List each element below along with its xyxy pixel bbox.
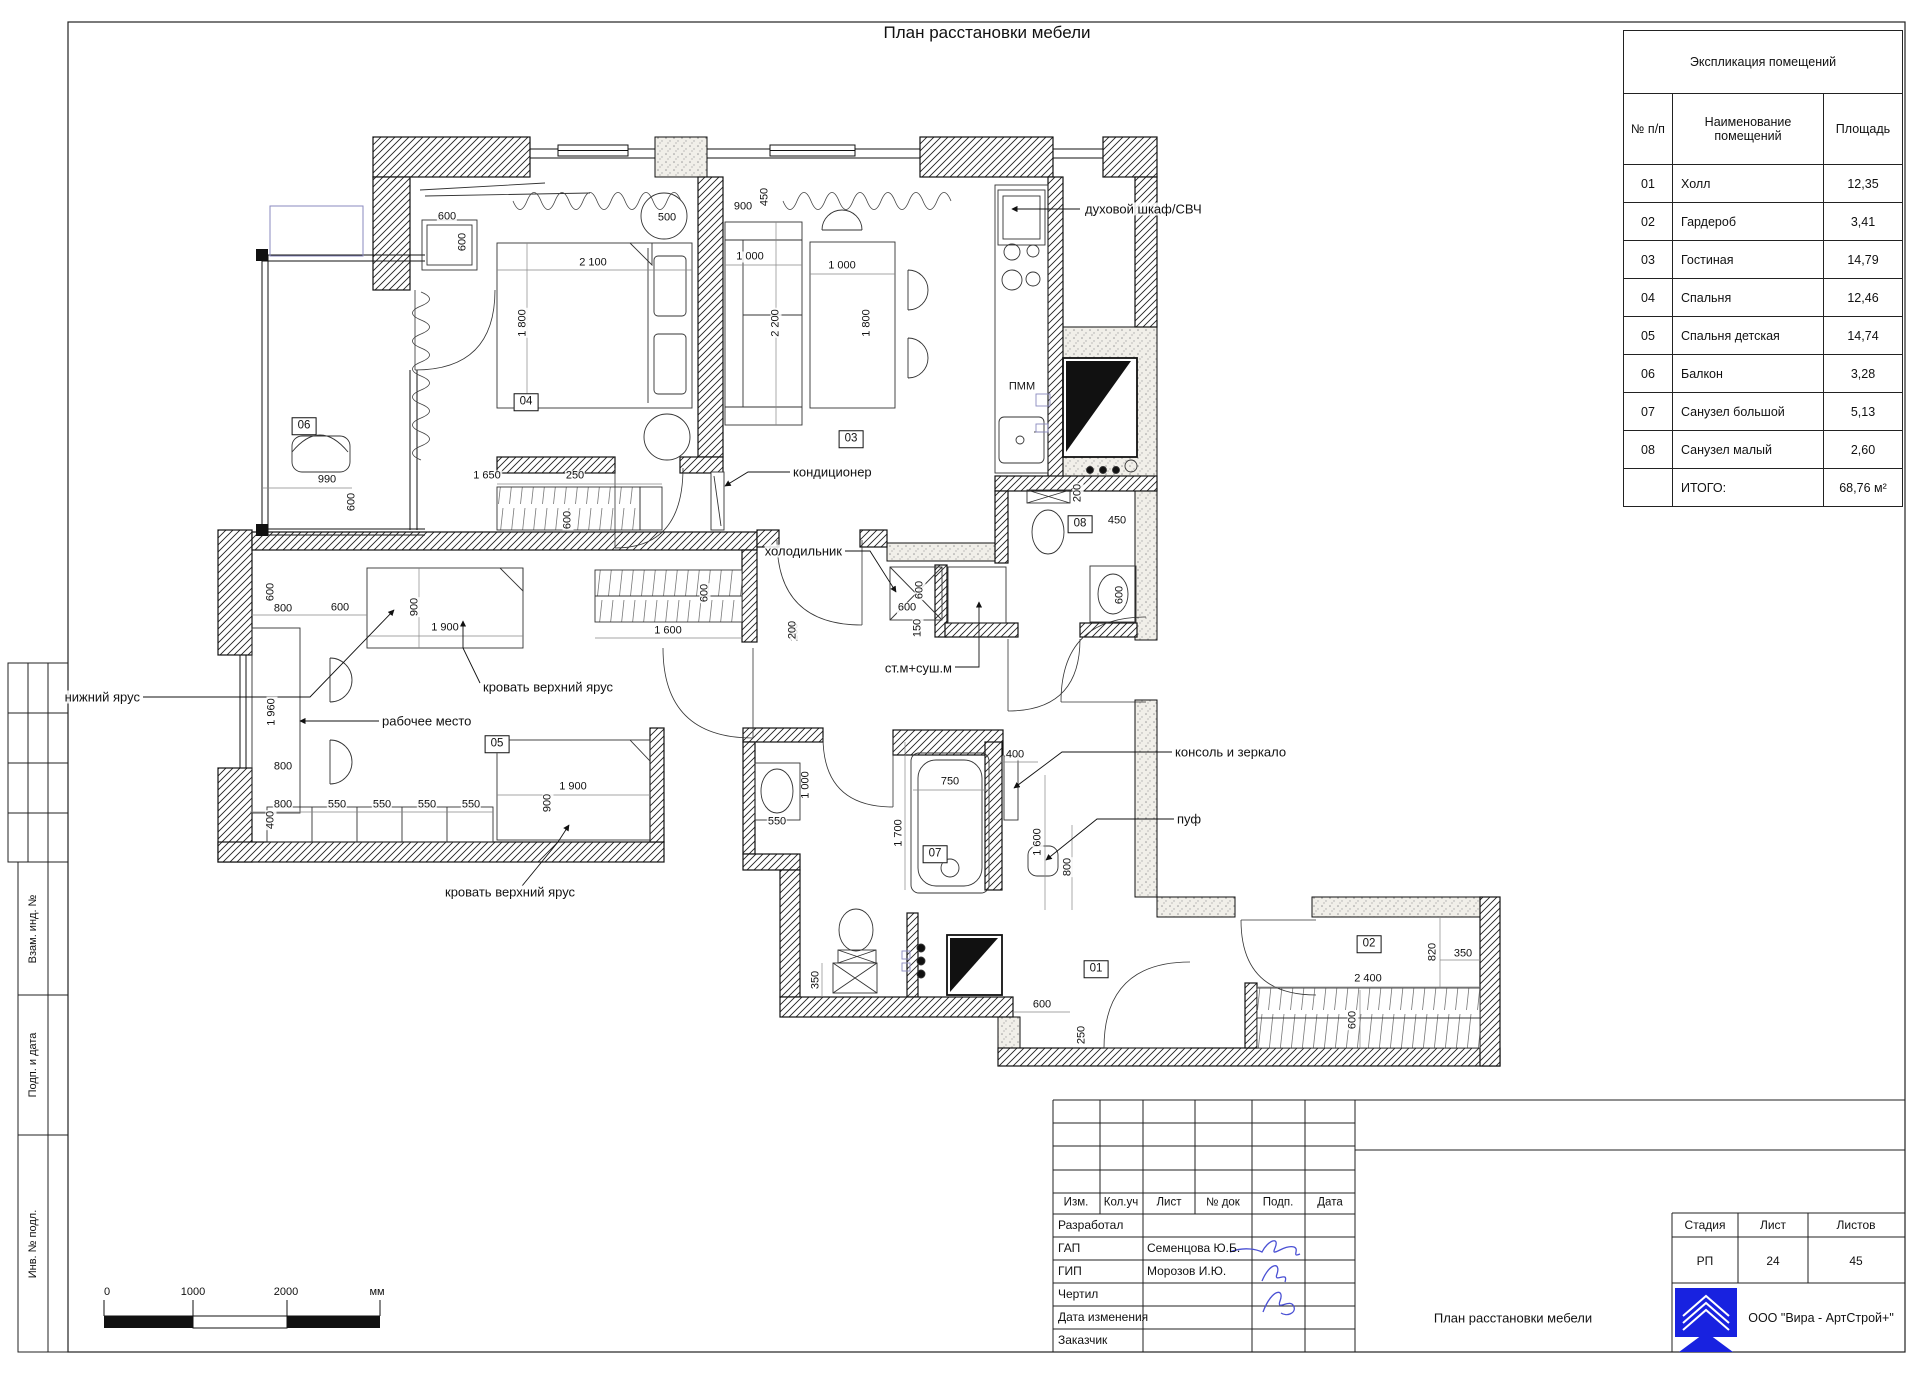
stamp-row-label: ГИП (1058, 1265, 1082, 1277)
sidebar-label: Инв. № подл. (27, 1210, 39, 1279)
doors-layer (415, 290, 1316, 1048)
stamp-sheets-label: Листов (1837, 1219, 1876, 1231)
dimension-label: 600 (1348, 1010, 1359, 1030)
stamp-row-label: Заказчик (1058, 1334, 1107, 1346)
room-tag: 08 (1068, 515, 1093, 533)
stamp-row-value: Морозов И.Ю. (1147, 1265, 1226, 1277)
dimension-label: 250 (565, 471, 585, 482)
room-tag: 07 (923, 845, 948, 863)
explication-cell-num: 03 (1624, 241, 1673, 278)
dimension-label: 990 (317, 475, 337, 486)
scale-tick-1000: 1000 (181, 1286, 205, 1298)
stamp-company: ООО "Вира - АртСтрой+" (1748, 1312, 1894, 1325)
explication-row: 07Санузел большой5,13 (1624, 393, 1902, 431)
dimension-label: 450 (760, 187, 771, 207)
explication-cell-area: 3,28 (1824, 355, 1902, 392)
stamp-sheet-label: Лист (1760, 1219, 1786, 1231)
dimension-label: 1 960 (267, 697, 278, 727)
dimension-label: 820 (1428, 942, 1439, 962)
sidebar-label: Подп. и дата (27, 1033, 39, 1098)
explication-header: № п/п Наименование помещений Площадь (1624, 94, 1902, 165)
explication-cell-name: Санузел малый (1673, 431, 1824, 468)
dimension-label: 900 (543, 793, 554, 813)
dimension-label: 600 (458, 232, 469, 252)
stamp-row-value: Семенцова Ю.Б. (1147, 1242, 1240, 1254)
dimension-label: 1 700 (894, 818, 905, 848)
explication-cell-area: 2,60 (1824, 431, 1902, 468)
explication-row: 06Балкон3,28 (1624, 355, 1902, 393)
callout-label: рабочее место (382, 715, 471, 728)
dimension-label: 600 (1032, 1000, 1052, 1011)
room-tag: 03 (839, 430, 864, 448)
dimension-label: 1 800 (862, 308, 873, 338)
dimension-label: 1 600 (653, 626, 683, 637)
dimension-label: 750 (940, 777, 960, 788)
explication-cell-num: 02 (1624, 203, 1673, 240)
drawing-sheet: План расстановки мебели 6006002 1005001 … (0, 0, 1920, 1377)
dimension-label: 2 100 (578, 258, 608, 269)
dimension-label: 800 (273, 762, 293, 773)
explication-table: Экспликация помещений № п/п Наименование… (1623, 30, 1903, 507)
dimension-label: 600 (347, 492, 358, 512)
dimension-lines-layer (250, 222, 1480, 1048)
dimension-label: 2 400 (1353, 974, 1383, 985)
explication-row: 02Гардероб3,41 (1624, 203, 1902, 241)
dimension-label: 900 (410, 597, 421, 617)
explication-cell-num: 04 (1624, 279, 1673, 316)
explication-row: ИТОГО:68,76 м² (1624, 469, 1902, 506)
explication-cell-num: 08 (1624, 431, 1673, 468)
dimension-label: 600 (330, 603, 350, 614)
explication-cell-name: Спальня (1673, 279, 1824, 316)
stamp-column-header: Кол.уч (1104, 1197, 1139, 1209)
callout-label: холодильник (765, 545, 842, 558)
windows-layer (240, 145, 1103, 768)
explication-cell-name: ИТОГО: (1673, 469, 1824, 506)
dimension-label: 600 (266, 582, 277, 602)
company-logo (1675, 1288, 1737, 1352)
dimension-label: 550 (327, 800, 347, 811)
dimension-label: 600 (897, 603, 917, 614)
room-tag: 01 (1084, 960, 1109, 978)
explication-row: 04Спальня12,46 (1624, 279, 1902, 317)
callout-label: консоль и зеркало (1175, 746, 1286, 759)
explication-row: 03Гостиная14,79 (1624, 241, 1902, 279)
explication-cell-area: 12,46 (1824, 279, 1902, 316)
explication-cell-num: 01 (1624, 165, 1673, 202)
stamp-row-label: Чертил (1058, 1288, 1098, 1300)
stamp-sheets-value: 45 (1849, 1255, 1862, 1267)
dimension-label: 350 (1453, 949, 1473, 960)
dimension-label: 550 (372, 800, 392, 811)
callout-label: кровать верхний ярус (445, 886, 575, 899)
explication-row: 01Холл12,35 (1624, 165, 1902, 203)
explication-row: 08Санузел малый2,60 (1624, 431, 1902, 469)
scale-tick-0: 0 (104, 1286, 110, 1298)
explication-cell-num: 07 (1624, 393, 1673, 430)
dimension-label: 550 (767, 817, 787, 828)
explication-cell-name: Холл (1673, 165, 1824, 202)
explication-cell-name: Спальня детская (1673, 317, 1824, 354)
explication-cell-area: 68,76 м² (1824, 469, 1902, 506)
dimension-label: 200 (1073, 483, 1084, 503)
explication-cell-area: 3,41 (1824, 203, 1902, 240)
explication-row: 05Спальня детская14,74 (1624, 317, 1902, 355)
explication-cell-name: Гардероб (1673, 203, 1824, 240)
callout-label: кровать верхний ярус (483, 681, 613, 694)
scale-tick-2000: 2000 (274, 1286, 298, 1298)
dimension-label: 500 (657, 213, 677, 224)
dimension-label: 600 (563, 510, 574, 530)
stamp-column-header: Дата (1317, 1197, 1342, 1209)
dimension-label: 1 000 (801, 770, 812, 800)
explication-cell-area: 12,35 (1824, 165, 1902, 202)
explication-cell-name: Гостиная (1673, 241, 1824, 278)
dimension-label: 1 900 (430, 623, 460, 634)
stamp-column-header: Подп. (1263, 1197, 1294, 1209)
walls-dotted-layer (655, 137, 1480, 1048)
stamp-stage-label: Стадия (1685, 1219, 1726, 1231)
room-tag: 05 (485, 735, 510, 753)
stamp-column-header: Лист (1157, 1197, 1182, 1209)
dimension-label: 350 (811, 970, 822, 990)
page-title: План расстановки мебели (884, 23, 1091, 43)
explication-cell-name: Балкон (1673, 355, 1824, 392)
room-tag: 06 (292, 417, 317, 435)
dimension-label: 400 (1005, 750, 1025, 761)
dimension-label: 1 000 (827, 261, 857, 272)
stamp-row-label: Дата изменения (1058, 1311, 1148, 1323)
room-tag: 02 (1357, 935, 1382, 953)
scale-unit: мм (369, 1286, 384, 1298)
dimension-label: 800 (1063, 857, 1074, 877)
explication-col-name: Наименование помещений (1673, 94, 1824, 164)
dimension-label: 150 (913, 618, 924, 638)
dimension-label: 600 (700, 583, 711, 603)
dimension-label: ПММ (1008, 382, 1036, 393)
stamp-row-label: ГАП (1058, 1242, 1080, 1254)
dimension-label: 550 (417, 800, 437, 811)
dimension-label: 200 (788, 620, 799, 640)
dimension-label: 1 800 (518, 308, 529, 338)
dimension-label: 550 (461, 800, 481, 811)
scale-bar-graphic (104, 1300, 380, 1328)
callout-label: духовой шкаф/СВЧ (1085, 203, 1202, 216)
dimension-label: 450 (1107, 516, 1127, 527)
dimension-label: 250 (1077, 1025, 1088, 1045)
dimension-label: 1 000 (735, 252, 765, 263)
callout-label: нижний ярус (65, 691, 140, 704)
stamp-sheet-value: 24 (1766, 1255, 1779, 1267)
explication-cell-num: 05 (1624, 317, 1673, 354)
explication-cell-num: 06 (1624, 355, 1673, 392)
dimension-label: 1 900 (558, 782, 588, 793)
callout-label: пуф (1177, 813, 1201, 826)
explication-title: Экспликация помещений (1624, 31, 1902, 94)
stamp-column-header: Изм. (1064, 1197, 1089, 1209)
dimension-label: 1 600 (1033, 827, 1044, 857)
explication-cell-name: Санузел большой (1673, 393, 1824, 430)
dimension-label: 2 200 (771, 308, 782, 338)
explication-col-area: Площадь (1824, 94, 1902, 164)
callout-label: ст.м+суш.м (885, 662, 952, 675)
dimension-label: 400 (266, 810, 277, 830)
explication-cell-area: 14,79 (1824, 241, 1902, 278)
dimension-label: 600 (1115, 585, 1126, 605)
dimension-label: 900 (733, 202, 753, 213)
explication-cell-num (1624, 469, 1673, 506)
stamp-stage-value: РП (1697, 1255, 1714, 1267)
signatures (1230, 1241, 1300, 1315)
explication-col-num: № п/п (1624, 94, 1673, 164)
dimension-label: 600 (915, 580, 926, 600)
dimension-label: 600 (437, 212, 457, 223)
callout-label: кондиционер (793, 466, 872, 479)
dimension-label: 1 650 (472, 471, 502, 482)
stamp-column-header: № док (1206, 1197, 1240, 1209)
stamp-doc-title: План расстановки мебели (1434, 1312, 1592, 1325)
explication-cell-area: 14,74 (1824, 317, 1902, 354)
dimension-label: 800 (273, 604, 293, 615)
stamp-row-label: Разработал (1058, 1219, 1123, 1231)
sidebar-label: Взам. инд. № (27, 895, 39, 964)
explication-cell-area: 5,13 (1824, 393, 1902, 430)
room-tag: 04 (514, 393, 539, 411)
